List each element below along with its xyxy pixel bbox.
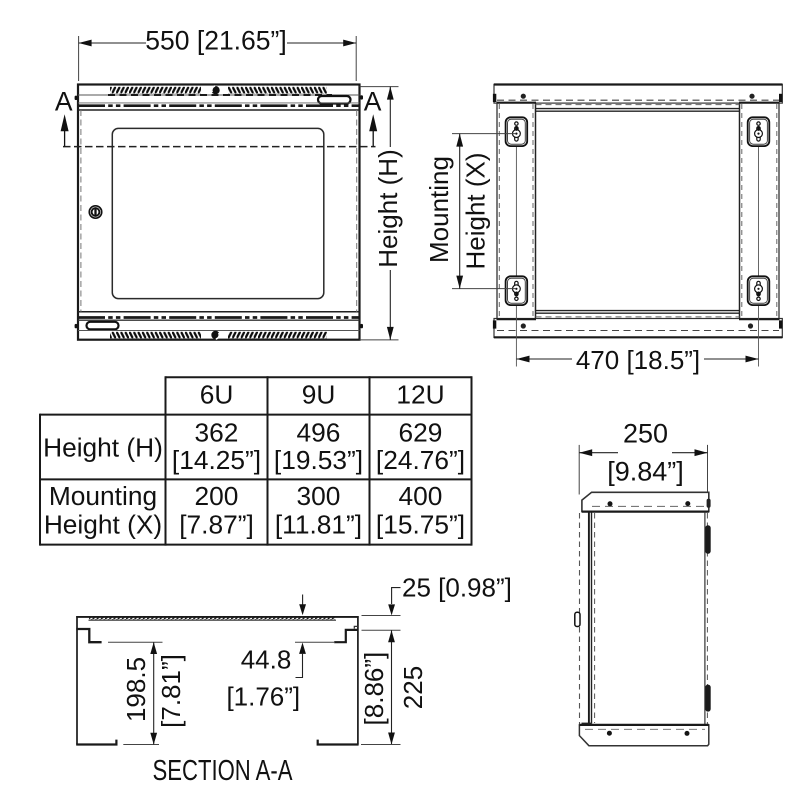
- svg-text:Height (H): Height (H): [373, 149, 403, 267]
- svg-text:[19.53”]: [19.53”]: [274, 445, 363, 475]
- svg-text:A: A: [55, 87, 73, 117]
- svg-text:400: 400: [399, 481, 443, 511]
- svg-text:200: 200: [195, 481, 239, 511]
- svg-text:Height (X): Height (X): [44, 510, 162, 540]
- svg-text:[9.84”]: [9.84”]: [607, 457, 684, 487]
- svg-text:550 [21.65”]: 550 [21.65”]: [145, 25, 286, 55]
- svg-text:6U: 6U: [200, 380, 234, 410]
- svg-text:496: 496: [297, 418, 341, 448]
- svg-text:250: 250: [623, 419, 668, 449]
- svg-text:A: A: [364, 87, 382, 117]
- svg-text:[8.86”]: [8.86”]: [359, 652, 389, 726]
- svg-text:44.8: 44.8: [241, 645, 292, 675]
- svg-text:Height (H): Height (H): [43, 433, 163, 463]
- svg-text:198.5: 198.5: [121, 657, 151, 722]
- svg-text:12U: 12U: [396, 380, 444, 410]
- svg-text:[14.25”]: [14.25”]: [172, 445, 261, 475]
- svg-text:25 [0.98”]: 25 [0.98”]: [402, 573, 512, 603]
- svg-text:[1.76”]: [1.76”]: [226, 682, 300, 712]
- svg-text:SECTION A-A: SECTION A-A: [153, 755, 293, 787]
- svg-text:[7.87”]: [7.87”]: [179, 510, 254, 540]
- svg-text:300: 300: [297, 481, 341, 511]
- svg-text:362: 362: [195, 418, 239, 448]
- svg-text:[24.76”]: [24.76”]: [376, 445, 465, 475]
- svg-text:225: 225: [398, 666, 428, 709]
- svg-text:[11.81”]: [11.81”]: [275, 510, 362, 540]
- svg-text:629: 629: [399, 418, 443, 448]
- svg-text:Height (X): Height (X): [461, 152, 491, 269]
- svg-text:[7.81”]: [7.81”]: [156, 654, 186, 728]
- svg-text:[15.75”]: [15.75”]: [376, 510, 465, 540]
- svg-text:470 [18.5”]: 470 [18.5”]: [576, 345, 700, 375]
- svg-text:9U: 9U: [302, 380, 336, 410]
- svg-text:Mounting: Mounting: [49, 481, 157, 511]
- svg-text:Mounting: Mounting: [424, 156, 454, 263]
